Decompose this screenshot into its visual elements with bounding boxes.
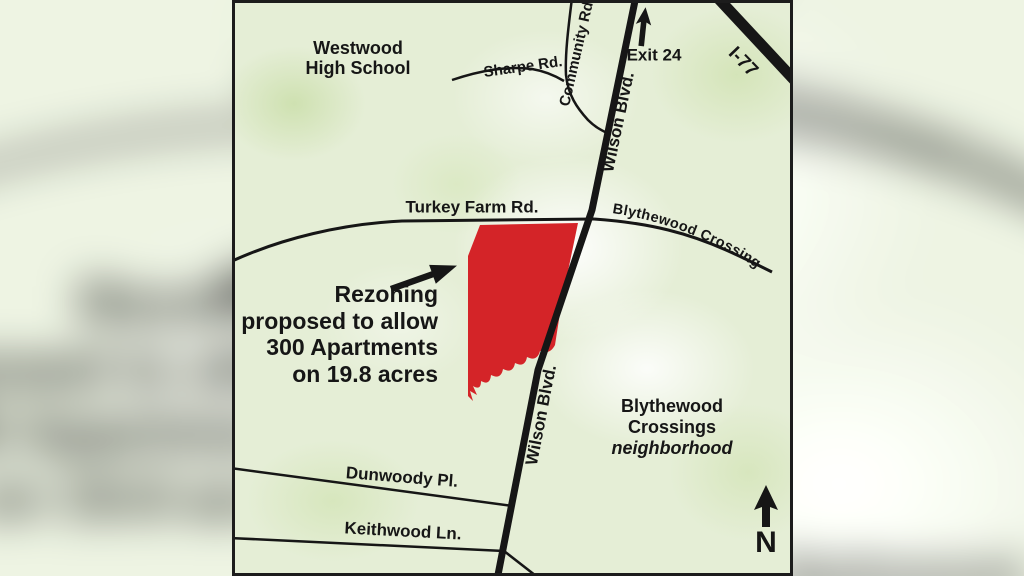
westwood-high-school-label: Westwood High School xyxy=(306,38,411,78)
school-label-line1: Westwood xyxy=(306,38,411,58)
road-keithwood-ln xyxy=(232,538,540,576)
school-label-line2: High School xyxy=(306,58,411,78)
annotation-line1: Rezoning xyxy=(241,281,438,308)
neighborhood-line1: Blythewood xyxy=(612,396,733,417)
rezoning-annotation: Rezoning proposed to allow 300 Apartment… xyxy=(241,281,438,387)
neighborhood-line2: Crossings xyxy=(612,417,733,438)
neighborhood-line3: neighborhood xyxy=(612,438,733,459)
compass-north-label: N xyxy=(755,528,777,558)
rezoning-parcel xyxy=(468,223,578,401)
exit-24-arrow-icon xyxy=(634,6,653,46)
blythewood-crossings-label: Blythewood Crossings neighborhood xyxy=(612,396,733,459)
annotation-line3: 300 Apartments xyxy=(241,334,438,361)
annotation-line2: proposed to allow xyxy=(241,308,438,335)
map-panel: Blythewood Crossing Ln. Westwood High Sc… xyxy=(232,0,793,576)
exit-24-label: Exit 24 xyxy=(627,47,682,64)
screenshot-root: Blythewood Crossing Ln. Westwood High Sc… xyxy=(0,0,1024,576)
annotation-line4: on 19.8 acres xyxy=(241,361,438,388)
turkey-farm-rd-label: Turkey Farm Rd. xyxy=(406,199,539,216)
north-arrow-icon xyxy=(754,485,778,527)
